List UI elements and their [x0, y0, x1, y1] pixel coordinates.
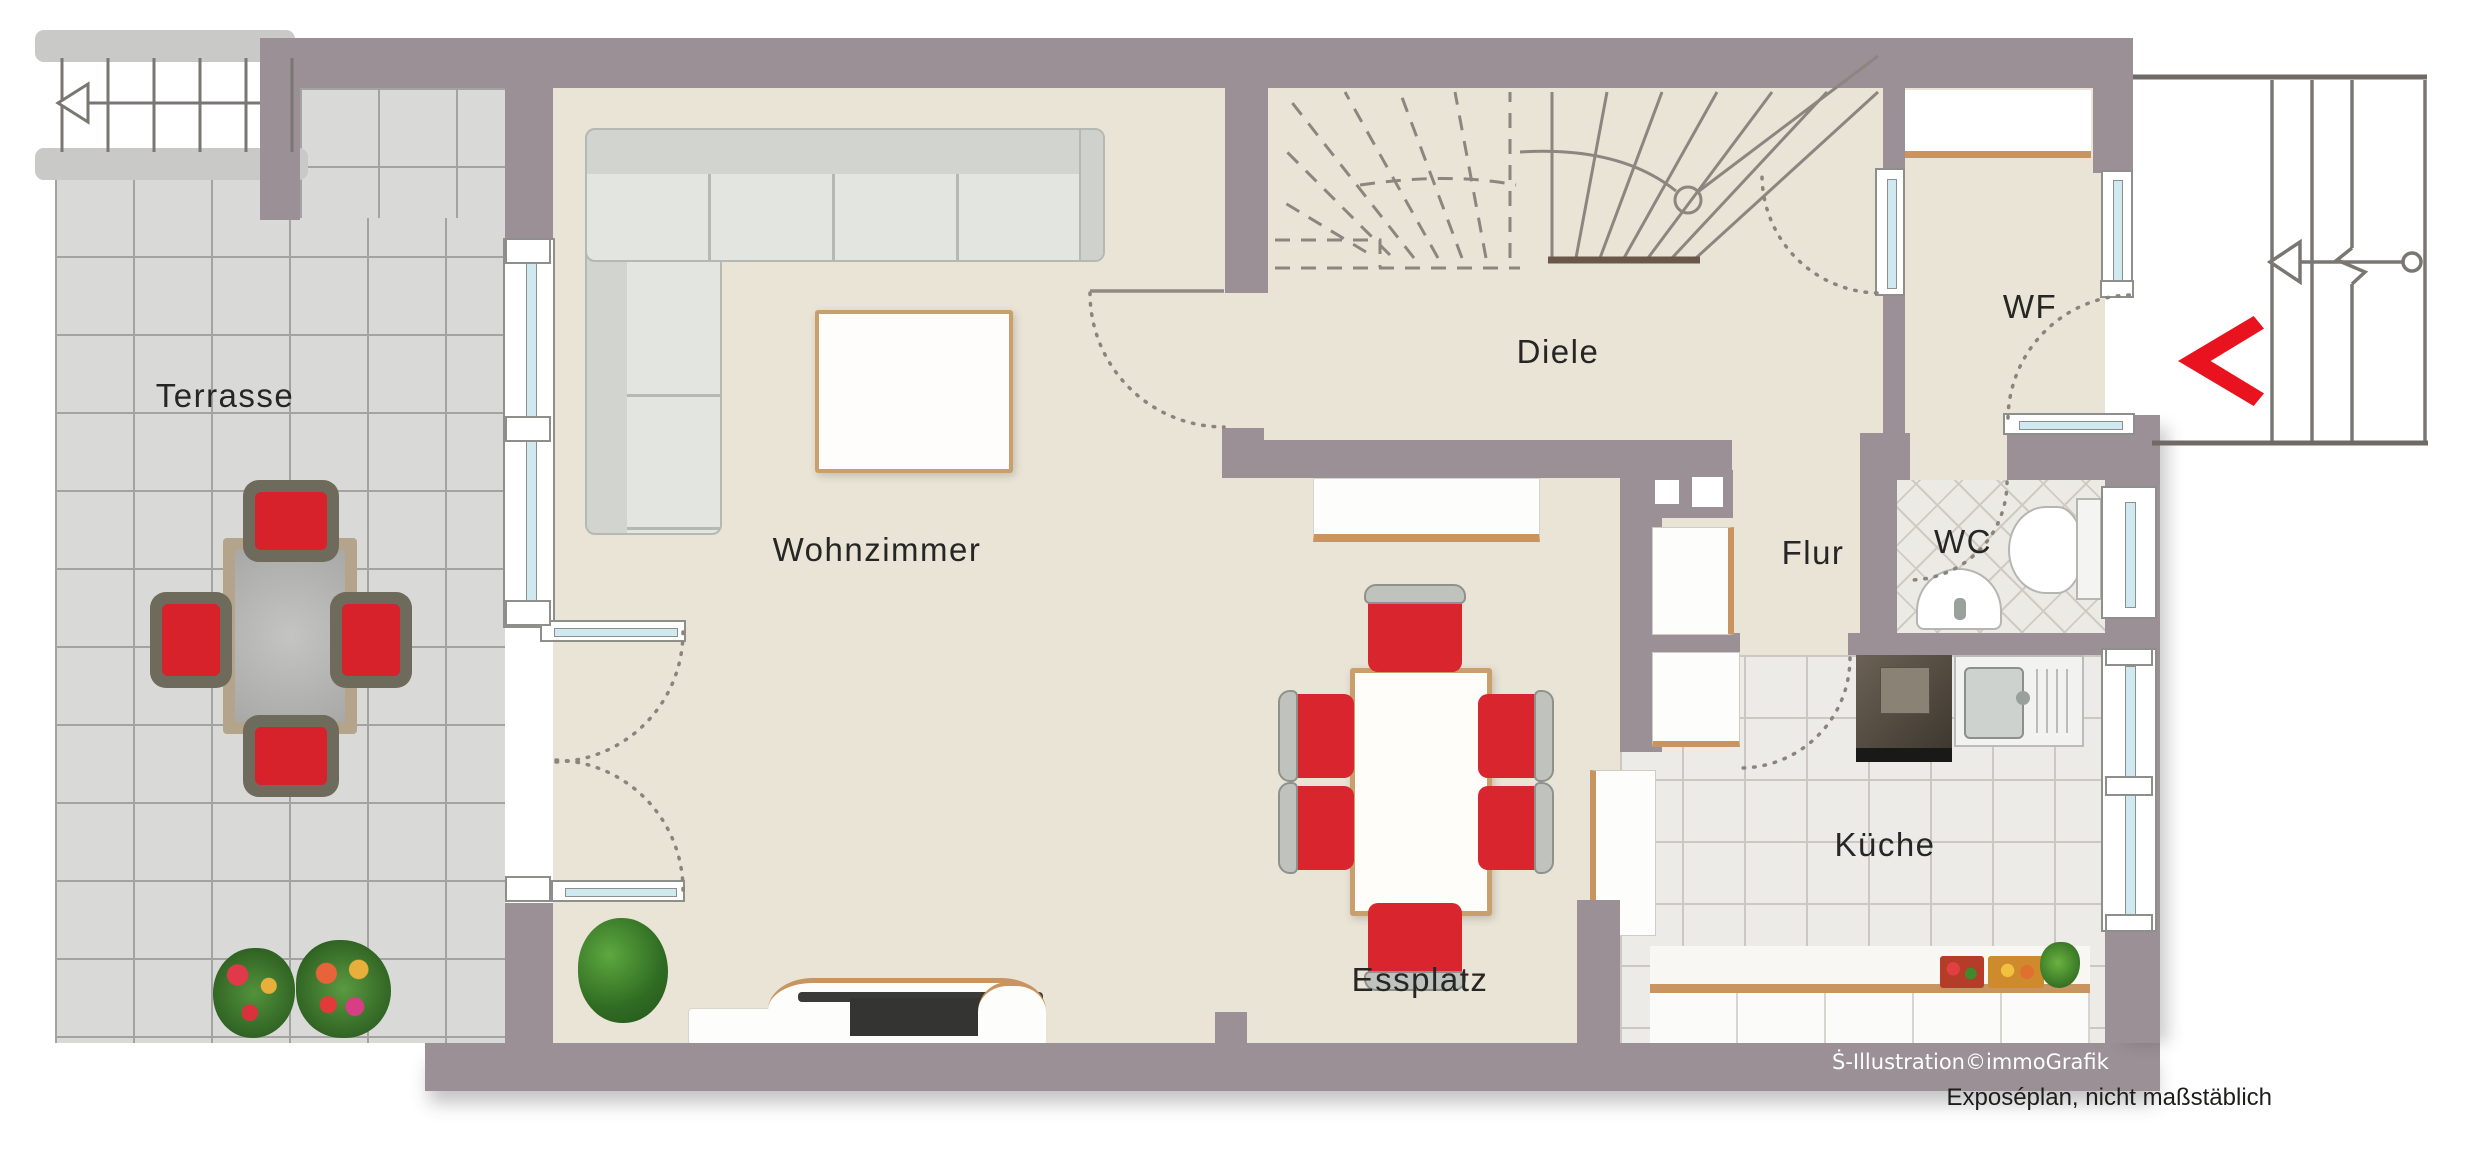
terrace-door-leaf	[551, 880, 685, 902]
wall-segment	[260, 38, 300, 220]
sink-bowl	[1964, 667, 2024, 739]
dining-table	[1350, 668, 1492, 916]
window-frame	[505, 238, 551, 264]
terrace-floor-niche	[300, 88, 505, 218]
floor-plan: Terrasse Wohnzimmer Diele WF Flur WC Küc…	[0, 0, 2480, 1158]
entry-door-leaf	[2003, 413, 2135, 435]
terrace-door-leaf	[540, 620, 686, 642]
terrace-chair	[330, 592, 412, 688]
sofa-armrest	[1079, 130, 1103, 260]
window-frame	[505, 876, 551, 902]
wall-segment	[1860, 480, 1897, 655]
hall-cupboard	[1652, 652, 1740, 747]
window-frame	[505, 416, 551, 442]
wall-segment	[2093, 38, 2133, 173]
dining-chair	[1368, 592, 1462, 672]
stair-arrow-icon	[58, 84, 88, 122]
window-wc	[2101, 486, 2157, 619]
dining-chair	[1478, 694, 1546, 778]
extractor-hood	[1880, 667, 1930, 714]
shaft-opening	[1655, 480, 1679, 504]
room-label-terrasse: Terrasse	[156, 377, 295, 415]
sofa-top-section	[585, 128, 1105, 262]
door-glass	[1887, 179, 1897, 289]
dining-chair	[1286, 694, 1354, 778]
hall-cupboard	[1652, 527, 1734, 635]
room-label-diele: Diele	[1517, 333, 1600, 371]
plan-caption: Exposéplan, nicht maßstäblich	[1947, 1084, 2273, 1112]
door-frame	[2100, 280, 2134, 298]
fruit-crate	[1988, 956, 2044, 988]
terrace-chair	[150, 592, 232, 688]
flower-pot	[296, 940, 391, 1038]
window-glass	[2113, 180, 2123, 290]
stair-arrow-icon	[2270, 242, 2300, 282]
shaft-opening	[1692, 477, 1723, 507]
dining-chair	[1478, 786, 1546, 870]
exterior-stair-wall-upper	[35, 30, 295, 62]
vegetable-crate	[1940, 956, 1984, 988]
exterior-stair-left	[58, 58, 292, 152]
chair-seat	[255, 727, 327, 785]
wall-segment	[1860, 433, 1910, 480]
door-glass	[554, 628, 678, 637]
entrance-arrow-icon	[2178, 316, 2264, 406]
wall-segment	[1883, 88, 1905, 173]
cooktop	[1856, 748, 1952, 762]
wall-segment	[260, 38, 2133, 88]
kitchen-sink	[1954, 655, 2084, 747]
room-label-wohnzimmer: Wohnzimmer	[773, 531, 982, 569]
stove	[1856, 655, 1952, 748]
wf-wardrobe	[1905, 90, 2091, 158]
chair-seat	[342, 604, 400, 676]
glazed-door-diele-wf	[1875, 168, 1905, 296]
stair-newel	[2403, 253, 2421, 271]
room-label-wf: WF	[2003, 288, 2057, 326]
dining-chair	[1286, 786, 1354, 870]
door-glass	[2019, 421, 2123, 430]
door-glass	[565, 888, 677, 897]
basin-tap	[1954, 598, 1966, 620]
coffee-table	[815, 310, 1013, 473]
toilet-tank	[2076, 498, 2102, 600]
room-label-wc: WC	[1934, 523, 1992, 561]
room-label-essplatz: Essplatz	[1352, 961, 1489, 999]
wall-segment	[1225, 88, 1268, 293]
window-frame	[2105, 776, 2153, 796]
window-frame	[2105, 648, 2153, 666]
break-line	[2337, 248, 2365, 284]
ottoman	[978, 982, 1046, 1047]
room-label-flur: Flur	[1782, 534, 1845, 572]
exterior-stair-right	[2270, 80, 2425, 441]
terrace-chair	[243, 480, 339, 562]
wall-segment	[1577, 900, 1620, 1090]
entry-sidelight-window	[2101, 170, 2133, 296]
room-label-kueche: Küche	[1834, 826, 1935, 864]
illustrator-watermark: Ṡ-Illustration©immoGrafik	[1832, 1050, 2109, 1074]
wall-segment	[1222, 428, 1264, 478]
kitchen-cabinets	[1650, 993, 2090, 1043]
sideboard	[1313, 478, 1540, 542]
wall-segment	[505, 88, 553, 243]
window-frame	[2105, 914, 2153, 932]
toilet	[2008, 506, 2084, 594]
sofa-cushions	[587, 174, 1081, 260]
window-frame	[505, 600, 551, 626]
chair-seat	[255, 492, 327, 550]
window-glass	[2125, 502, 2136, 608]
chair-seat	[162, 604, 220, 676]
wall-segment	[1215, 1012, 1247, 1043]
wall-segment	[1883, 293, 1905, 440]
sink-drainer	[2028, 669, 2076, 733]
sofa-cushions	[627, 264, 720, 533]
potted-plant	[578, 918, 668, 1023]
exterior-boundary-lines	[2133, 77, 2428, 443]
wall-segment	[505, 903, 553, 1043]
terrace-chair	[243, 715, 339, 797]
